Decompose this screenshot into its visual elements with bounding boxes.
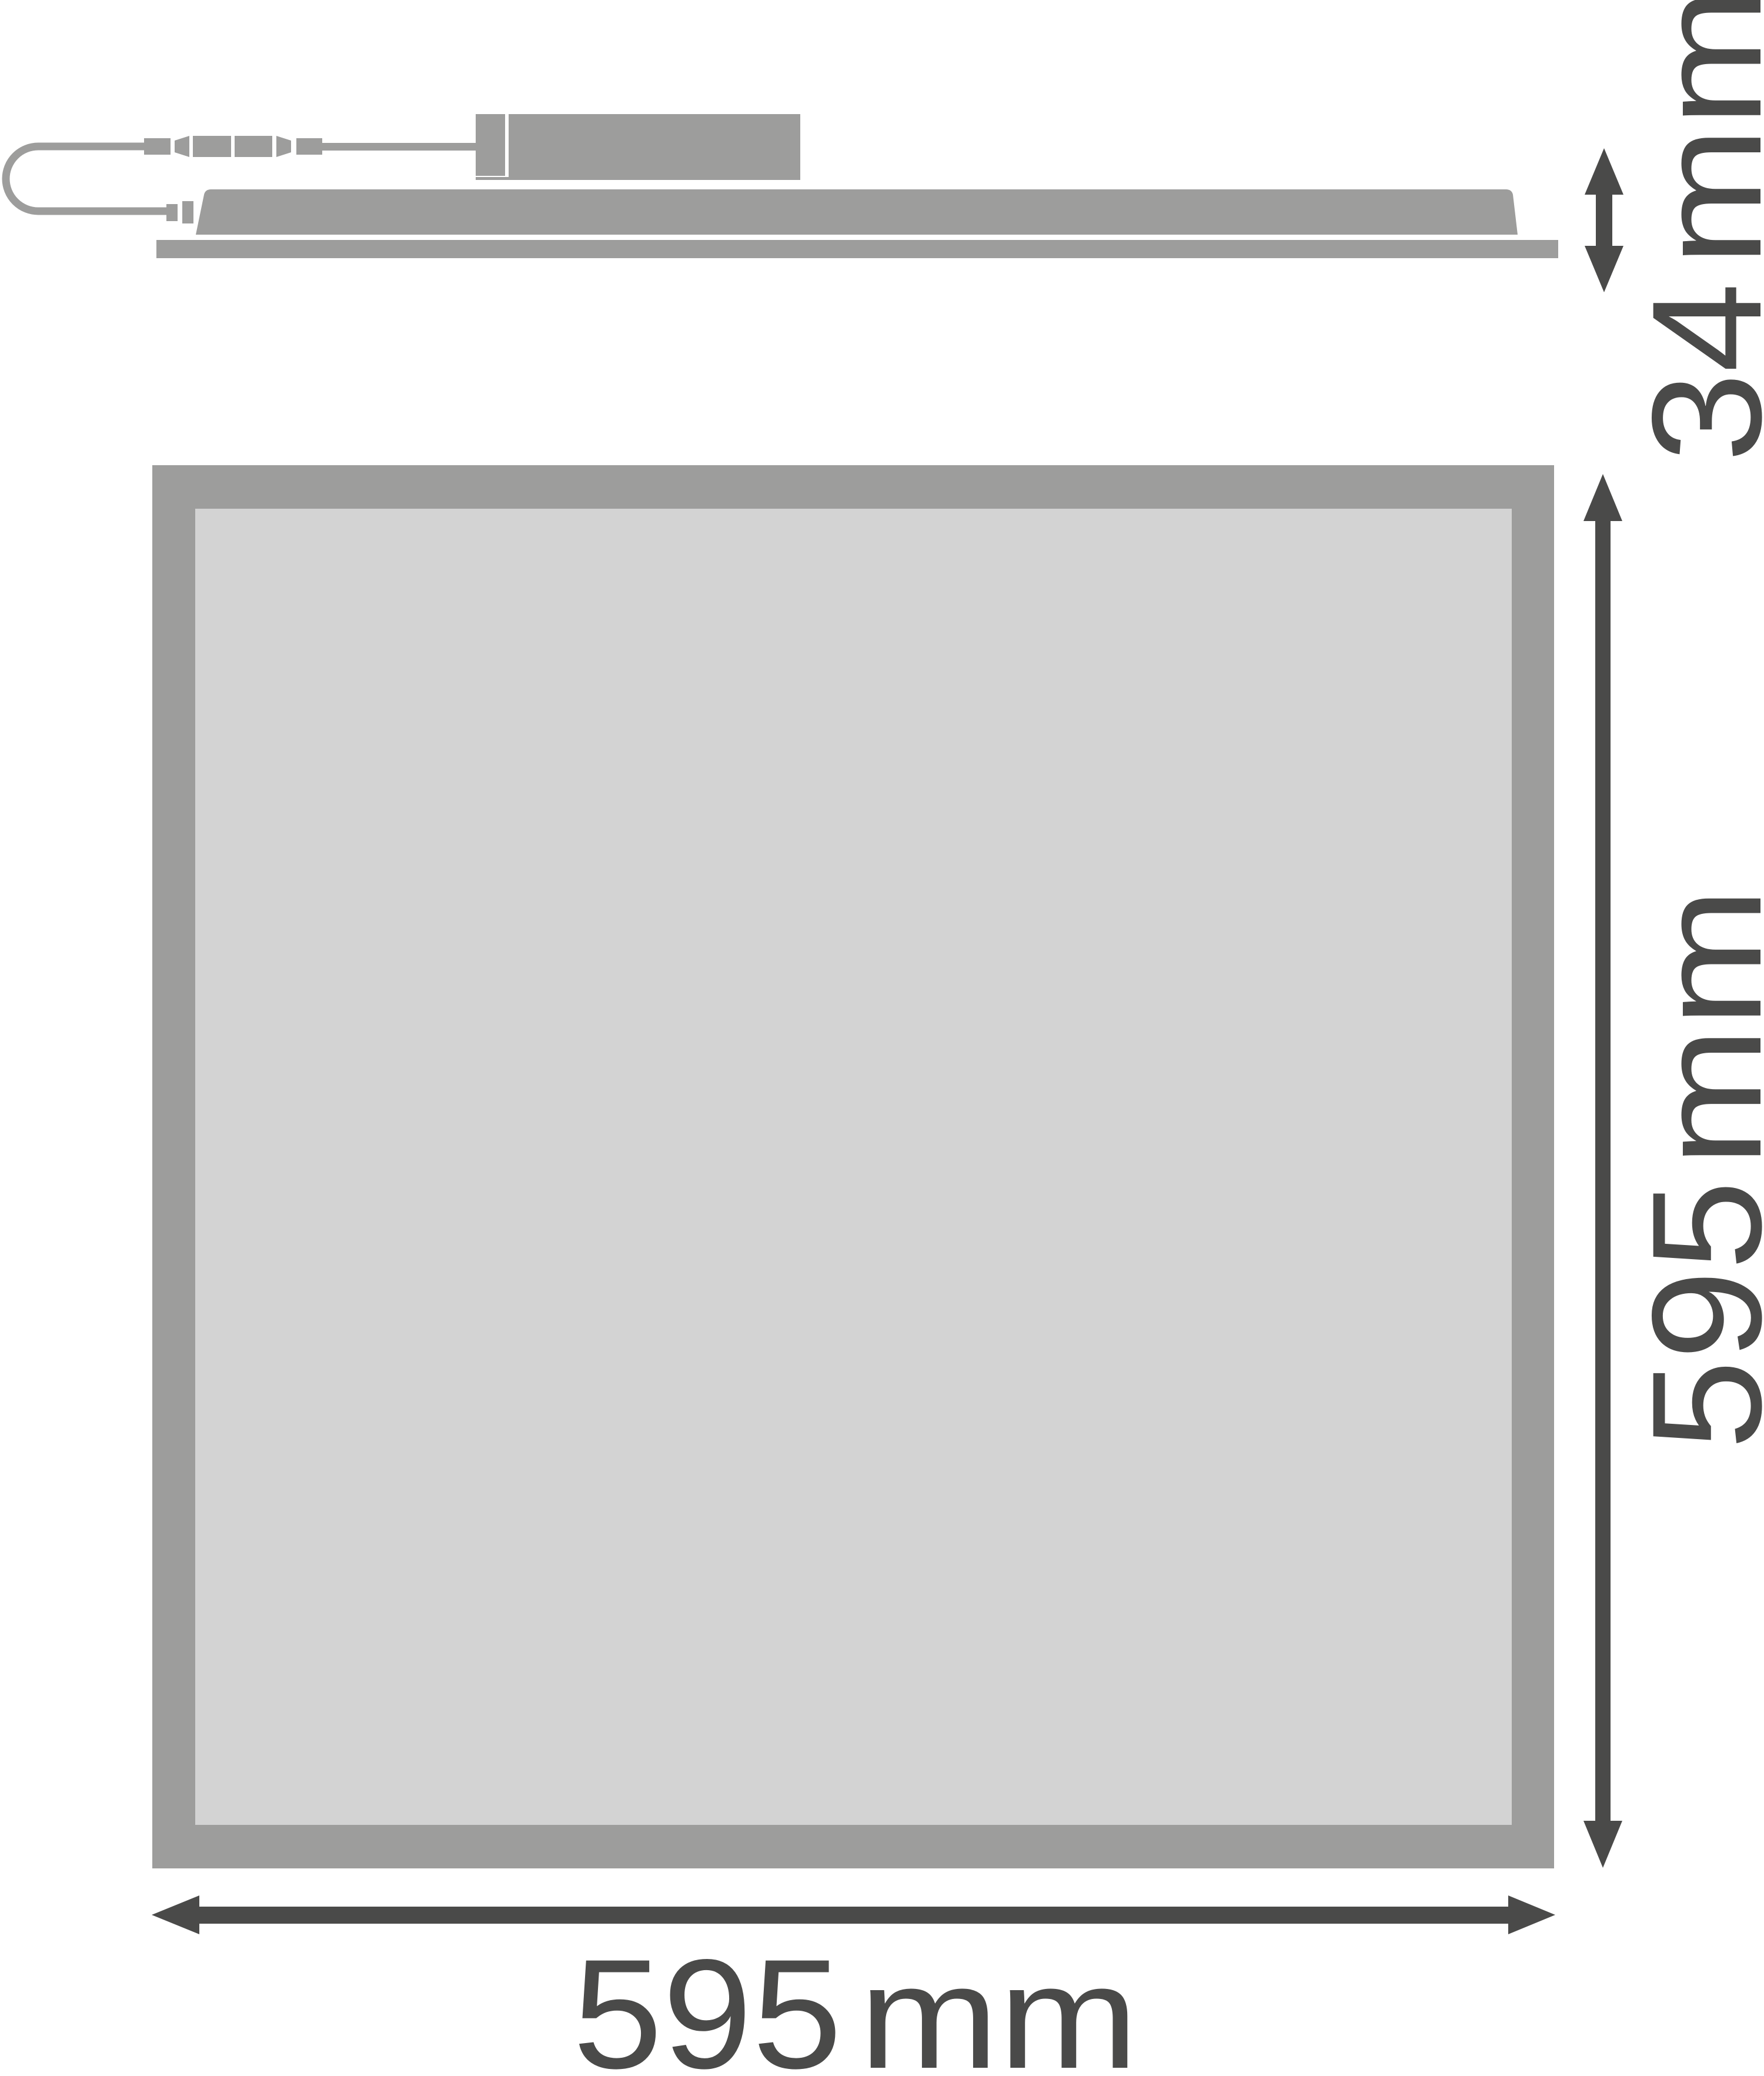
svg-text:mm: mm [1627,887,1764,1167]
svg-text:34: 34 [1620,283,1764,462]
svg-text:595: 595 [1620,1180,1764,1450]
svg-text:mm: mm [859,1934,1138,2076]
svg-text:595: 595 [573,1927,842,2076]
svg-text:mm: mm [1627,0,1764,266]
